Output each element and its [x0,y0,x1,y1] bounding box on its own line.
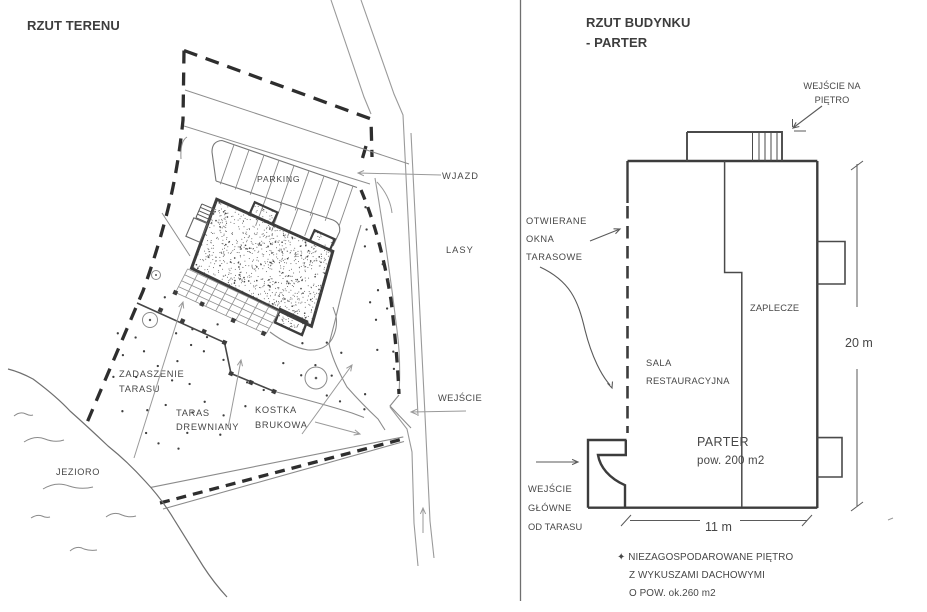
svg-text:WEJŚCIE: WEJŚCIE [438,392,482,403]
svg-text:KOSTKA: KOSTKA [255,405,297,415]
svg-text:WEJŚCIE NA: WEJŚCIE NA [803,80,861,91]
svg-text:O POW. ok.260 m2: O POW. ok.260 m2 [629,588,716,599]
svg-text:20 m: 20 m [845,336,873,350]
svg-text:BRUKOWA: BRUKOWA [255,420,308,430]
svg-text:SALA: SALA [646,358,672,368]
svg-text:- PARTER: - PARTER [586,35,648,50]
svg-text:TARAS: TARAS [176,408,210,418]
svg-text:PIĘTRO: PIĘTRO [815,95,850,105]
svg-text:WJAZD: WJAZD [442,171,479,181]
svg-text:RESTAURACYJNA: RESTAURACYJNA [646,376,730,386]
svg-text:LASY: LASY [446,245,474,255]
svg-text:RZUT BUDYNKU: RZUT BUDYNKU [586,15,690,30]
svg-text:TARASU: TARASU [119,384,160,394]
svg-text:WEJŚCIE: WEJŚCIE [528,483,572,494]
svg-text:TARASOWE: TARASOWE [526,252,583,262]
svg-text:GŁÓWNE: GŁÓWNE [528,503,572,513]
svg-text:✦ NIEZAGOSPODAROWANE PIĘTRO: ✦ NIEZAGOSPODAROWANE PIĘTRO [617,552,794,563]
svg-text:PARKING: PARKING [257,174,300,184]
svg-text:ZADASZENIE: ZADASZENIE [119,369,184,379]
svg-text:ZAPLECZE: ZAPLECZE [750,303,799,313]
svg-text:PARTER: PARTER [697,435,749,449]
svg-text:DREWNIANY: DREWNIANY [176,422,239,432]
svg-text:OTWIERANE: OTWIERANE [526,216,587,226]
svg-text:11 m: 11 m [705,520,732,534]
svg-text:RZUT TERENU: RZUT TERENU [27,18,120,33]
svg-text:JEZIORO: JEZIORO [56,467,100,477]
svg-text:pow. 200 m2: pow. 200 m2 [697,455,764,467]
svg-text:OKNA: OKNA [526,234,555,244]
svg-text:OD TARASU: OD TARASU [528,522,582,532]
svg-text:Z WYKUSZAMI DACHOWYMI: Z WYKUSZAMI DACHOWYMI [629,570,765,581]
